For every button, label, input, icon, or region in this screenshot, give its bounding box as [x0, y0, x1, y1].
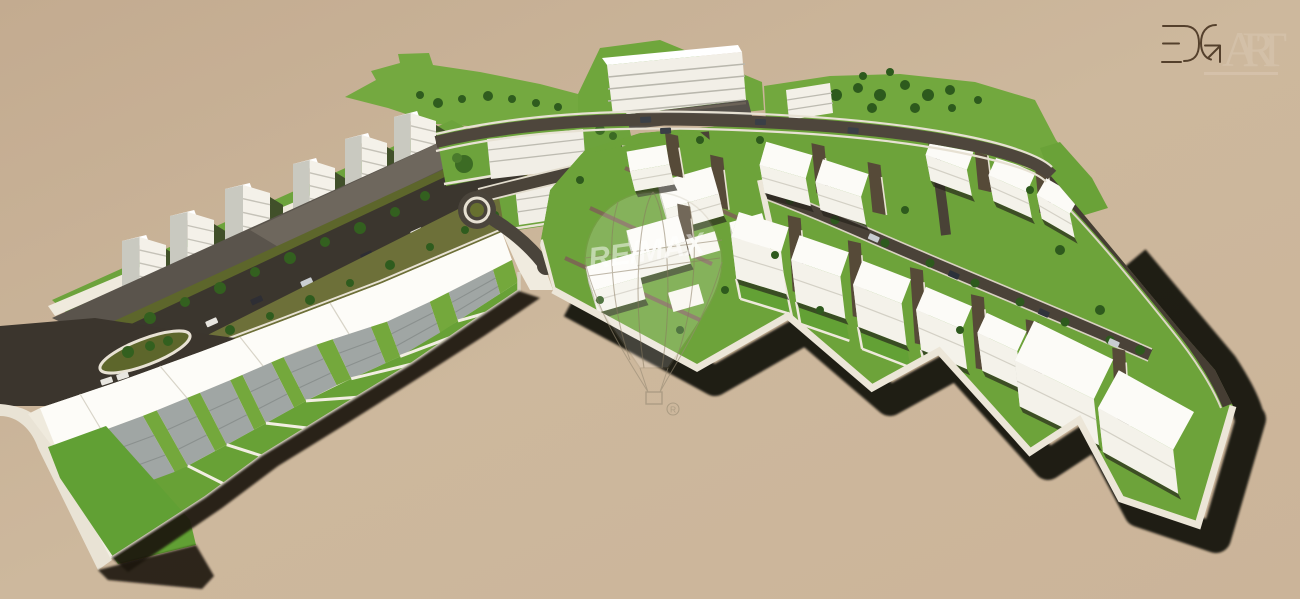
svg-text:ART: ART [1222, 21, 1286, 77]
svg-text:R: R [670, 405, 676, 415]
